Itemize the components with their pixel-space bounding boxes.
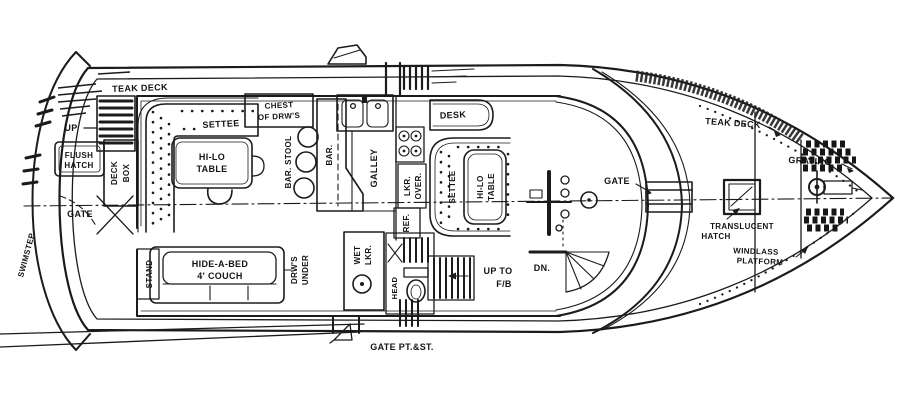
centerline [24,198,894,206]
svg-text:BOX: BOX [122,163,131,182]
gate-fwd-label: GATE [604,176,630,186]
svg-text:TABLE: TABLE [196,164,227,174]
mast-fittings [527,172,597,234]
svg-text:4' COUCH: 4' COUCH [197,271,242,281]
bar-stool-label: BAR. STOOL [284,136,293,189]
hide-a-bed-couch: HIDE-A-BED 4' COUCH [150,247,284,303]
svg-text:PLATFORM: PLATFORM [737,256,784,267]
stove [396,127,424,162]
svg-text:DECK: DECK [110,161,119,185]
settee-stbd-label: SETTEE [448,170,457,204]
svg-text:FLUSH: FLUSH [65,151,93,160]
svg-text:HATCH: HATCH [701,232,730,241]
gate-pt-st-label: GATE PT.&ST. [370,342,434,352]
svg-text:WINDLASS: WINDLASS [733,246,779,257]
foredeck: TEAK DECK GRATING TRANSLUCENT HATCH [701,116,862,267]
stern-dock-lines [0,324,364,347]
svg-text:HI-LO: HI-LO [476,175,485,199]
teak-deck-fwd-label: TEAK DECK [705,116,761,130]
svg-text:LKR.: LKR. [364,245,373,265]
svg-text:TABLE: TABLE [487,173,496,201]
windlass-platform-label: WINDLASS PLATFORM [733,246,808,267]
svg-text:OF DRW'S: OF DRW'S [258,111,301,122]
swimstep-outline [33,52,91,350]
svg-text:HATCH: HATCH [64,161,93,170]
stand: STAND [137,249,159,299]
gunwale-gate-top [386,63,400,96]
head-label: HEAD [390,276,399,299]
wet-locker: WET LKR. [344,232,384,310]
svg-text:TRANSLUCENT: TRANSLUCENT [710,222,774,231]
galley: GALLEY LKR. OVER. REF. [337,95,426,240]
drawers-under-label: DRW'S UNDER [284,255,310,285]
stbd-dinette: SETTEE HI-LO TABLE [430,138,510,236]
translucent-hatch: TRANSLUCENT HATCH [701,180,774,241]
swimstep-label: SWIMSTEP [16,232,37,279]
teak-deck-aft-label: TEAK DECK [112,82,168,94]
svg-text:REF.: REF. [402,214,411,233]
cabin-front-arc [556,96,648,316]
boarding-step-top [328,45,474,96]
up-label: UP [64,123,77,133]
svg-text:UNDER: UNDER [301,255,310,285]
dn-label: DN. [534,263,551,273]
bar-stool-1 [298,127,318,147]
bar-stool-3 [294,178,314,198]
desk: DESK [430,100,493,130]
svg-text:HI-LO: HI-LO [199,152,225,162]
grating-label: GRATING [788,155,832,167]
foredeck-step [646,182,692,212]
locker-over: LKR. OVER. [398,164,426,208]
spiral-stair-dn: DN. [530,220,609,292]
grating: GRATING [788,144,856,228]
hilo-table-stbd: HI-LO TABLE [464,150,506,224]
hilo-table-port: HI-LO TABLE [172,138,264,188]
chest-of-drawers: CHEST OF DRW'S [245,94,313,127]
toilet-tank [404,268,428,277]
svg-text:HIDE-A-BED: HIDE-A-BED [192,259,249,269]
svg-text:F/B: F/B [496,279,512,289]
companionway-treads [404,238,428,262]
svg-text:CHEST: CHEST [264,100,293,110]
table-seat [208,188,232,204]
gate-aft: GATE [60,196,133,234]
svg-text:LKR.: LKR. [403,176,412,196]
head-compartment: HEAD [386,233,434,314]
bar-counter [317,99,363,211]
gate-aft-label: GATE [67,209,93,219]
galley-label: GALLEY [369,149,379,188]
svg-text:UP TO: UP TO [484,266,513,276]
bar-stool-2 [296,152,316,172]
settee-port-label: SETTEE [202,118,240,130]
deck-plan: GATE PT.&ST. TEAK DECK UP FLUSH HATCH [0,0,900,403]
deck-plan-drawing: GATE PT.&ST. TEAK DECK UP FLUSH HATCH [0,0,900,403]
bar-label: BAR. [325,145,334,166]
desk-label: DESK [440,109,467,120]
svg-text:OVER.: OVER. [414,173,423,200]
side-deck-treads [400,300,418,326]
svg-text:WET: WET [353,246,362,265]
